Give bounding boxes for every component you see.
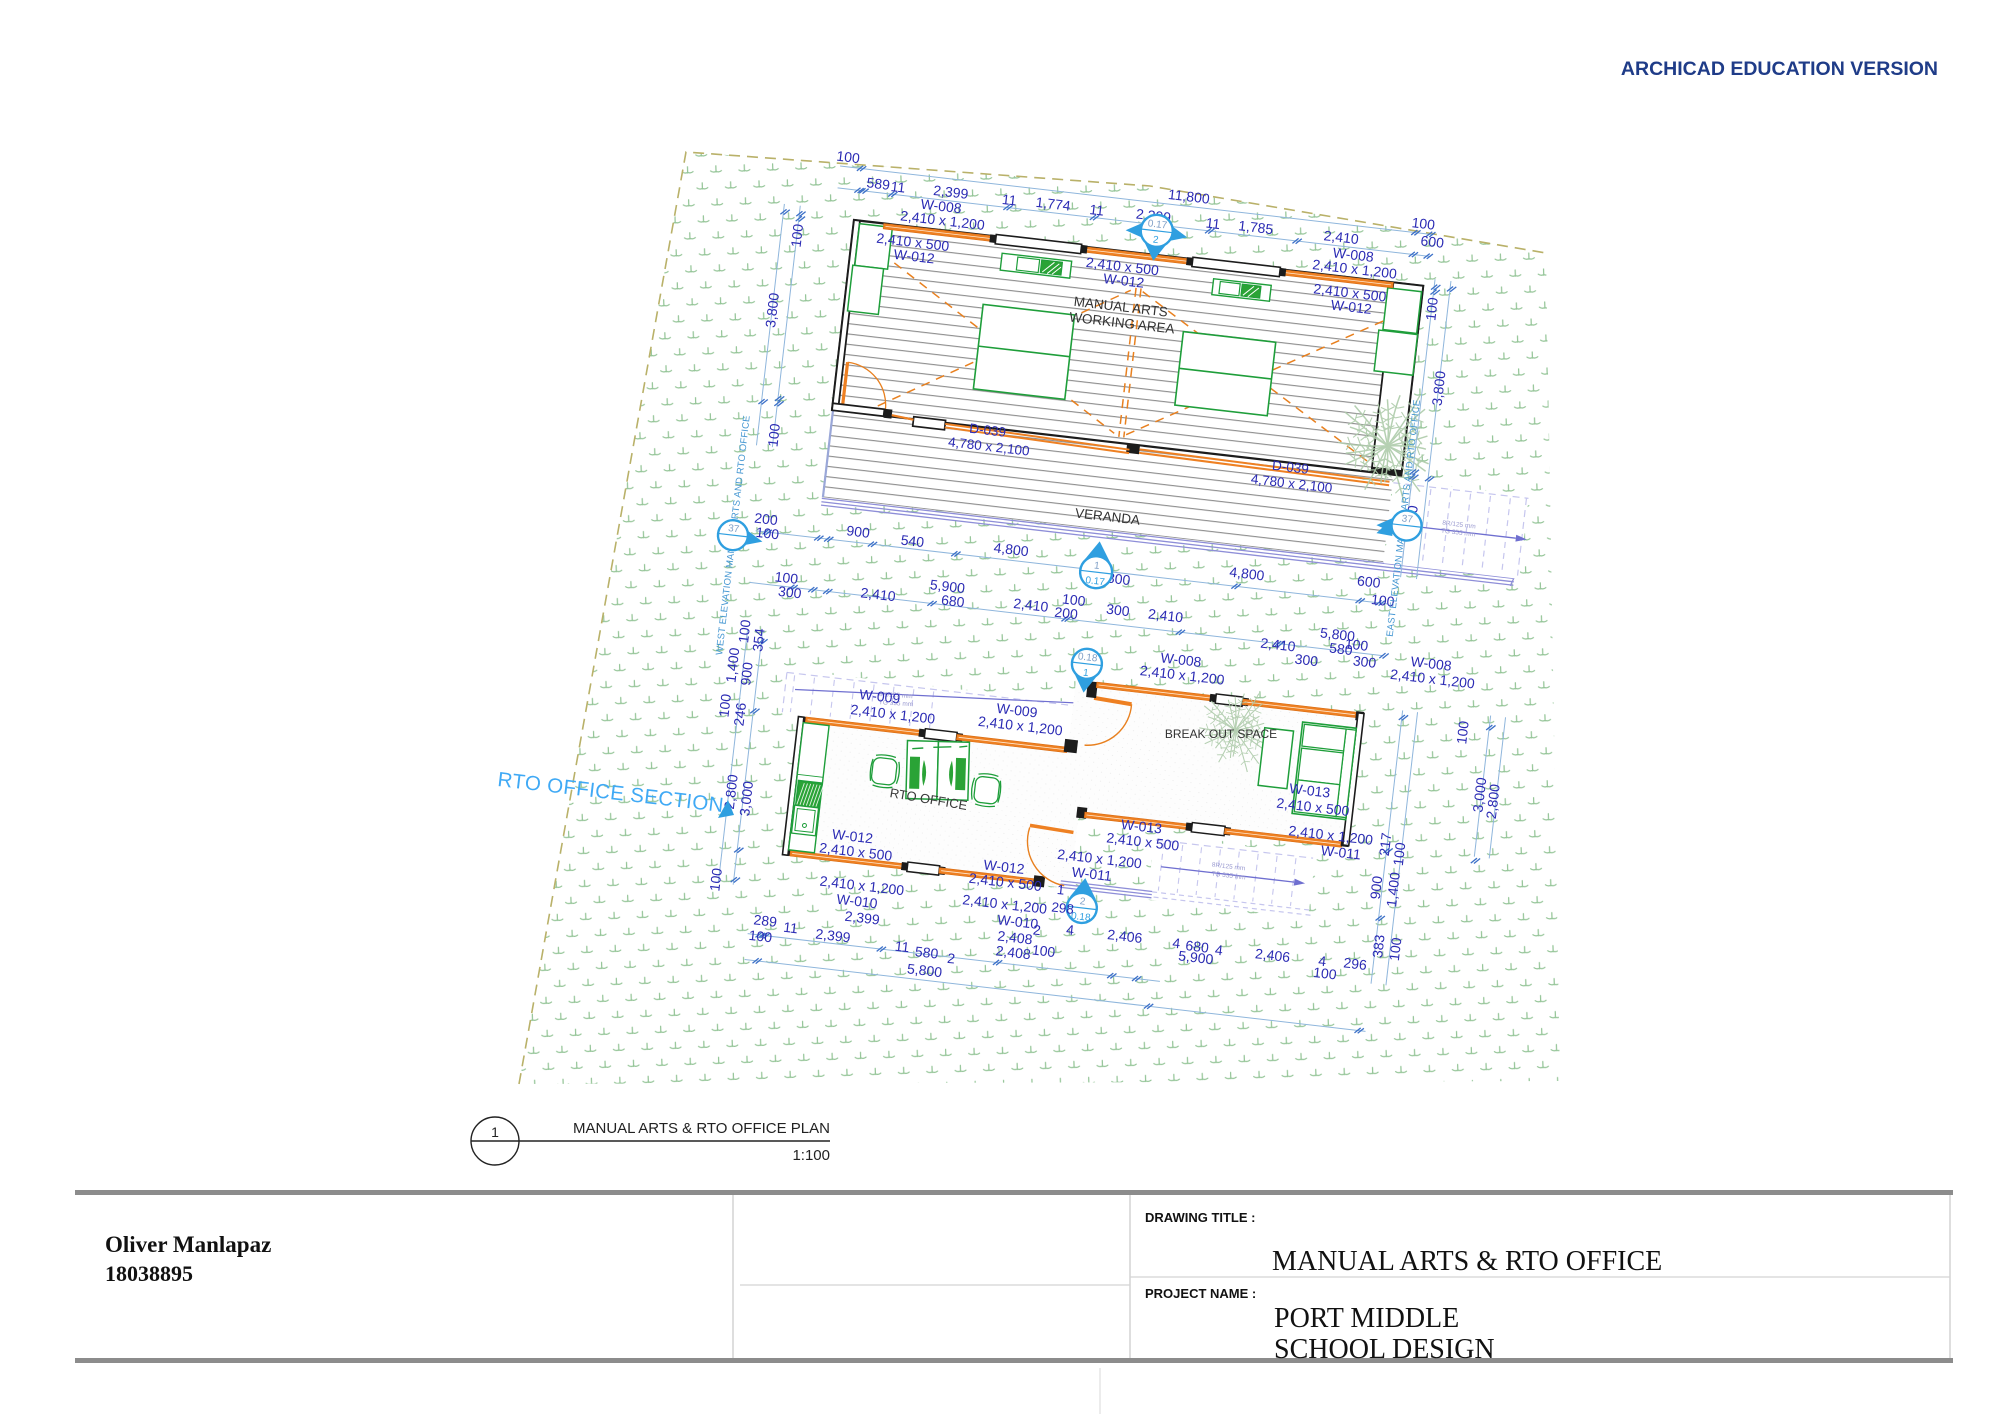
svg-text:100: 100 xyxy=(706,867,725,892)
svg-text:300: 300 xyxy=(1352,652,1377,671)
svg-text:100: 100 xyxy=(764,422,783,447)
svg-text:540: 540 xyxy=(900,532,925,551)
svg-text:MANUAL ARTS & RTO OFFICE: MANUAL ARTS & RTO OFFICE xyxy=(1272,1246,1662,1277)
svg-text:0.17: 0.17 xyxy=(1085,575,1106,588)
svg-text:11: 11 xyxy=(890,178,906,196)
svg-text:100: 100 xyxy=(1031,942,1056,961)
svg-text:100: 100 xyxy=(1390,841,1409,866)
svg-text:DRAWING TITLE :: DRAWING TITLE : xyxy=(1145,1210,1256,1225)
svg-text:PROJECT NAME :: PROJECT NAME : xyxy=(1145,1286,1256,1301)
svg-text:18038895: 18038895 xyxy=(105,1261,193,1286)
svg-text:298: 298 xyxy=(1051,899,1075,916)
svg-text:354: 354 xyxy=(749,627,768,652)
svg-text:300: 300 xyxy=(1294,651,1319,670)
svg-text:246: 246 xyxy=(731,702,750,727)
svg-text:580: 580 xyxy=(914,943,939,962)
svg-text:1: 1 xyxy=(491,1124,499,1140)
svg-text:11: 11 xyxy=(894,938,910,956)
svg-text:0.18: 0.18 xyxy=(1077,651,1098,664)
svg-text:100: 100 xyxy=(836,148,861,167)
svg-text:100: 100 xyxy=(1422,296,1441,321)
svg-text:37: 37 xyxy=(1401,513,1414,525)
svg-text:MANUAL ARTS & RTO OFFICE PLAN: MANUAL ARTS & RTO OFFICE PLAN xyxy=(573,1120,830,1137)
svg-text:100: 100 xyxy=(1344,635,1369,654)
svg-text:600: 600 xyxy=(1420,232,1445,251)
svg-text:1:100: 1:100 xyxy=(792,1147,830,1164)
svg-text:37: 37 xyxy=(728,523,741,535)
svg-text:0.17: 0.17 xyxy=(1147,218,1168,231)
svg-text:ARCHICAD EDUCATION VERSION: ARCHICAD EDUCATION VERSION xyxy=(1621,58,1938,80)
svg-text:589: 589 xyxy=(866,174,891,193)
svg-text:Oliver Manlapaz: Oliver Manlapaz xyxy=(105,1232,271,1257)
svg-text:100: 100 xyxy=(1312,964,1337,983)
svg-text:100: 100 xyxy=(1386,936,1405,961)
svg-text:100: 100 xyxy=(1411,214,1436,233)
svg-text:300: 300 xyxy=(1105,601,1130,620)
svg-text:296: 296 xyxy=(1343,954,1368,973)
svg-text:11: 11 xyxy=(1001,191,1017,209)
svg-text:900: 900 xyxy=(737,661,756,686)
svg-text:11: 11 xyxy=(782,919,798,937)
svg-text:900: 900 xyxy=(1367,875,1386,900)
svg-text:SCHOOL DESIGN: SCHOOL DESIGN xyxy=(1274,1334,1495,1365)
svg-text:100: 100 xyxy=(788,223,807,248)
svg-text:300: 300 xyxy=(777,583,802,602)
svg-text:PORT MIDDLE: PORT MIDDLE xyxy=(1274,1303,1459,1334)
svg-text:100: 100 xyxy=(1453,720,1472,745)
svg-text:11: 11 xyxy=(1089,201,1105,219)
svg-text:600: 600 xyxy=(1356,572,1381,591)
svg-text:680: 680 xyxy=(940,592,965,611)
svg-text:BREAK OUT SPACE: BREAK OUT SPACE xyxy=(1165,727,1277,741)
svg-text:11: 11 xyxy=(1205,215,1221,233)
svg-text:383: 383 xyxy=(1369,934,1388,959)
svg-text:100: 100 xyxy=(748,927,773,946)
svg-text:900: 900 xyxy=(846,522,871,541)
svg-text:200: 200 xyxy=(1054,604,1079,623)
